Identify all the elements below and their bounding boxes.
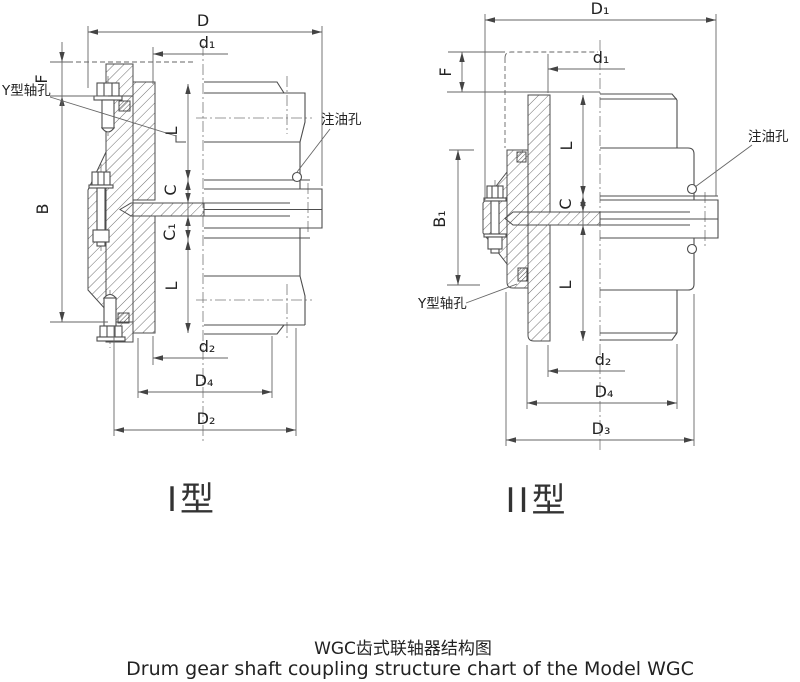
dim-label-D4: D₄ xyxy=(195,371,214,390)
dim-label-d2: d₂ xyxy=(199,337,216,356)
dim-label-L-top: L xyxy=(557,141,576,150)
dim-label-B: B xyxy=(33,204,52,215)
oil-hole xyxy=(688,185,697,194)
right-sectioned-parts xyxy=(483,95,600,341)
bolt-nut xyxy=(488,237,502,249)
callout-shaft-hole: Y型轴孔 xyxy=(417,296,467,312)
dim-label-C: C xyxy=(556,198,575,209)
right-drawing-type2: D₁ F d₁ B₁ L C L d₂ D₄ D₃ Y型轴孔 注油孔 II型 xyxy=(417,0,789,521)
flange-bolt-head xyxy=(92,172,110,185)
left-drawing-type1: D d₁ F B L C C₁ L d₂ D₄ D₂ Y型轴孔 注油孔 I型 xyxy=(1,11,362,520)
callout-oil-hole: 注油孔 xyxy=(321,112,362,128)
dim-label-L-bottom: L xyxy=(162,281,181,290)
oil-hole-leader xyxy=(695,145,752,187)
top-bolt-head xyxy=(97,83,119,96)
bolt-shank xyxy=(491,201,499,234)
seal-ring-top xyxy=(119,101,130,111)
dim-label-D: D xyxy=(197,11,209,30)
callout-oil-hole: 注油孔 xyxy=(748,129,789,145)
bottom-bolt-head xyxy=(100,326,122,337)
footer-title-en: Drum gear shaft coupling structure chart… xyxy=(126,658,694,680)
dim-label-C: C xyxy=(161,184,180,195)
spacer-plate-section xyxy=(120,203,204,216)
dim-label-d2: d₂ xyxy=(595,350,612,369)
seal-ring-top xyxy=(517,152,526,162)
flange-bolt-shank xyxy=(97,188,105,230)
shaft-hole-leader xyxy=(466,284,517,303)
upper-hub-section xyxy=(133,82,155,200)
dim-label-d1: d₁ xyxy=(593,48,610,67)
callout-shaft-hole: Y型轴孔 xyxy=(1,83,51,99)
spacer-plate-section xyxy=(505,212,600,225)
dim-label-B1: B₁ xyxy=(430,210,449,227)
bolt-head xyxy=(487,186,503,198)
lower-hub-section xyxy=(133,216,155,333)
footer: WGC齿式联轴器结构图 Drum gear shaft coupling str… xyxy=(126,639,694,680)
dim-label-D3: D₃ xyxy=(592,419,611,438)
dim-label-L-top: L xyxy=(162,126,181,135)
lower-hub-section xyxy=(528,225,550,341)
dim-label-D1: D₁ xyxy=(591,0,610,18)
drawing-page: D d₁ F B L C C₁ L d₂ D₄ D₂ Y型轴孔 注油孔 I型 xyxy=(0,0,800,682)
dim-label-D2: D₂ xyxy=(197,409,216,428)
oil-hole-lower xyxy=(688,245,697,254)
oil-hole xyxy=(293,173,302,182)
flange-bolt-nut xyxy=(93,230,109,242)
seal-ring-bottom xyxy=(518,268,527,281)
dim-label-D4: D₄ xyxy=(595,382,614,401)
dim-label-d1: d₁ xyxy=(199,33,216,52)
dim-label-F: F xyxy=(436,67,455,76)
upper-hub-section xyxy=(528,95,550,212)
coupling-structure-diagram: D d₁ F B L C C₁ L d₂ D₄ D₂ Y型轴孔 注油孔 I型 xyxy=(0,0,800,682)
caption-type1: I型 xyxy=(167,480,217,520)
footer-title-zh: WGC齿式联轴器结构图 xyxy=(314,639,492,659)
caption-type2: II型 xyxy=(505,481,568,521)
dim-label-C1: C₁ xyxy=(160,223,179,241)
dim-label-L-bottom: L xyxy=(556,280,575,289)
